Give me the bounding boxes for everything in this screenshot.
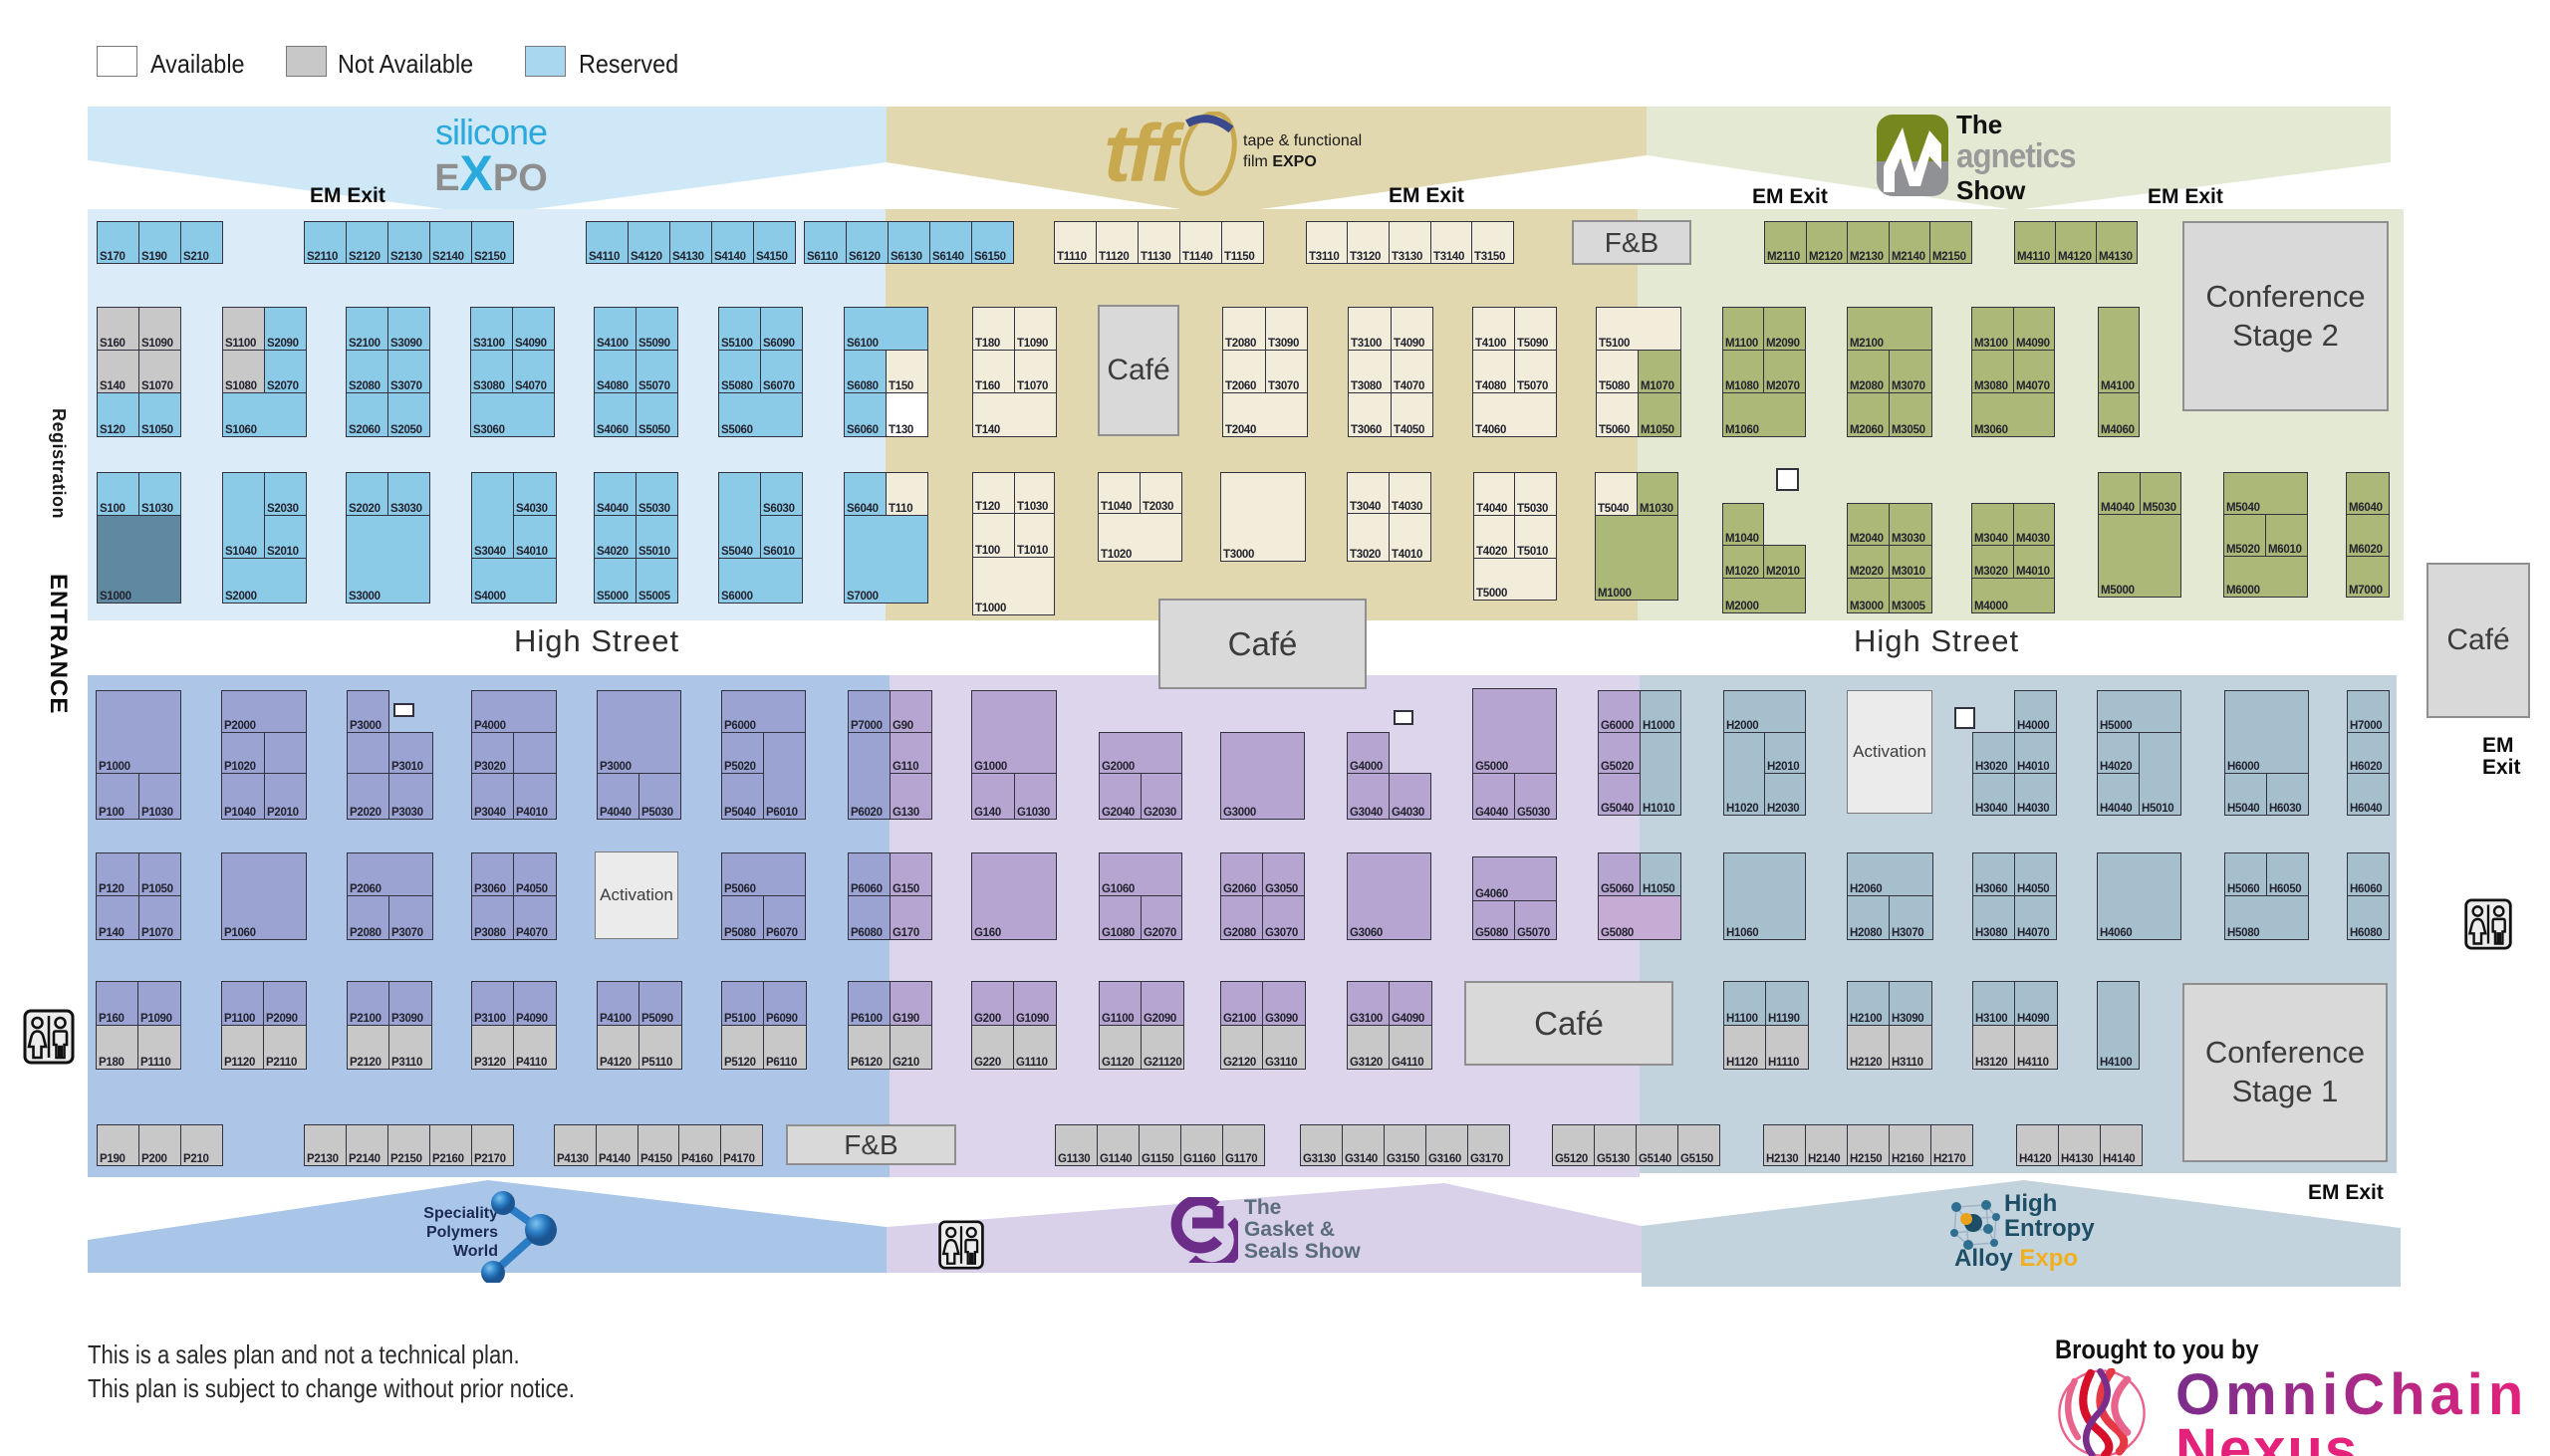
svg-text:tff: tff	[1104, 112, 1185, 199]
